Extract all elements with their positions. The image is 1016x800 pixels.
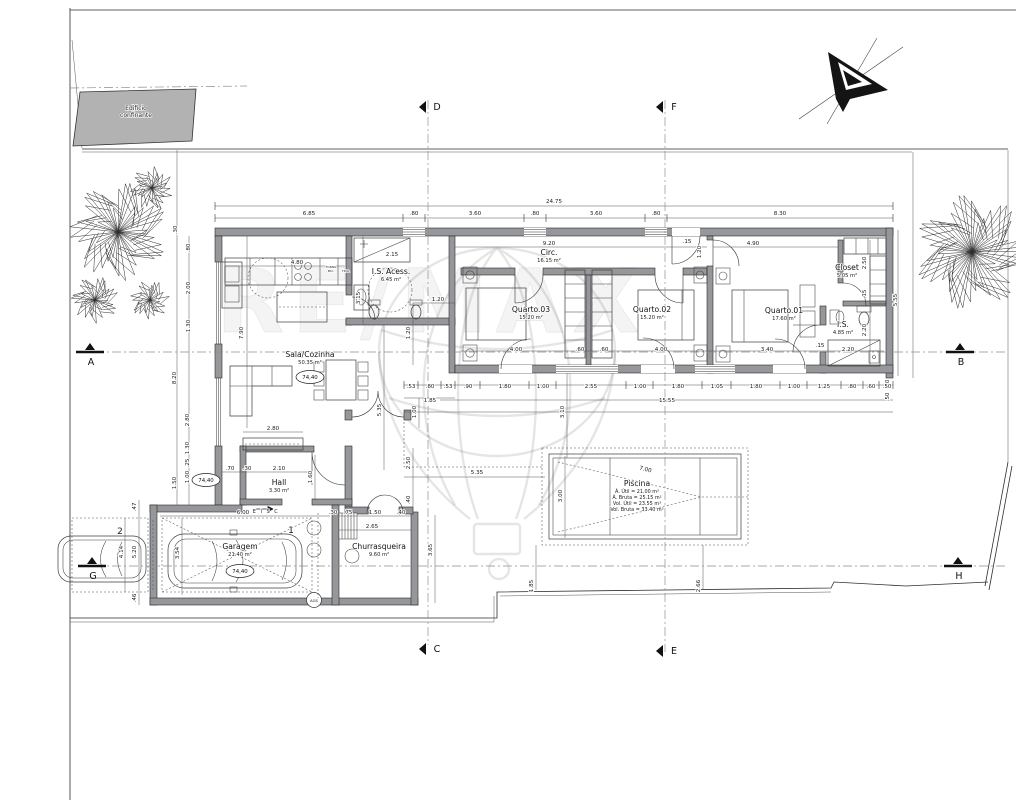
dimension-label: 1.85 [529,579,535,592]
dimension-label: 2.50 [862,256,868,269]
floor-plan-svg: RE/MAX Edificio confinante [0,0,1016,800]
room-area-label: 17.60 m² [772,316,796,322]
section-marker-label: H [955,571,962,582]
toilet [857,306,871,312]
dimension-label: 4.00 [655,347,668,353]
north-arrow-icon [799,38,903,124]
dimension-label: .80 [531,211,540,217]
room-label: Garagem [222,542,257,551]
dimension-label: .15 [816,343,825,349]
room-area-label: 6.45 m² [381,277,401,283]
dimension-label: 2.00 [186,281,192,294]
dimension-label: 3.60 [590,211,603,217]
dimension-label: 1.05 [711,384,724,390]
room-label: Quarto.02 [633,305,671,314]
room-label: Closet [835,263,859,272]
wardrobe [592,270,612,358]
dimension-label: 1.60 [308,470,314,483]
room-area-label: 16.15 m² [537,258,561,264]
dimension-label: .80 [410,211,419,217]
dimension-label: .15 [862,289,868,298]
section-marker-label: D [433,102,440,113]
dimension-label: 2.80 [185,413,191,426]
dimension-label: .60 [576,347,585,353]
dimension-label: .40 [406,495,412,504]
dimension-label: 2.20 [842,347,855,353]
dimension-label: 8.20 [172,371,178,384]
dimension-label: .30 [329,510,338,516]
dimension-label: .90 [464,384,473,390]
pool-data-line: Vol. Útil = 23.55 m³ [613,500,661,507]
room-area-label: 5.05 m² [837,273,857,279]
section-marker-arrow-icon [955,343,965,350]
dimension-label: 2.65 [366,524,379,530]
dimension-label: .70 [226,466,235,472]
dimension-label: 2.55 [585,384,598,390]
dimension-label: .80 [652,211,661,217]
dimension-label: 1.50 [369,510,382,516]
tree-icon [131,282,170,319]
dimension-label: 15.55 [659,398,675,404]
dimension-label: .15 [683,239,692,245]
dimension-label: 1.00 [788,384,801,390]
annotation-label: 1 [288,526,294,536]
dimension-label: 1.00 [412,405,418,418]
dimension-label: 1.00 [634,384,647,390]
level-value: 74,40 [302,375,318,381]
dimension-label: 1.80 [672,384,685,390]
dimension-label: 4.80 [291,260,304,266]
floor-plan-page: RE/MAX Edificio confinante [0,0,1016,800]
dimension-label: .25 [185,458,191,467]
tree-icon [70,183,163,280]
room-label: Churrasqueira [352,542,406,551]
section-marker-label: F [671,102,676,113]
dimension-label: .60 [867,384,876,390]
dimension-label: 2.15 [386,252,399,258]
dimension-label: 1.80 [750,384,763,390]
dimension-label: .50 [885,392,891,401]
room-label: Quarto.03 [512,305,550,314]
room-area-label: 50.35 m² [298,360,322,366]
dimension-label: 2.66 [696,579,702,592]
room-area-label: 3.30 m² [269,488,289,494]
annotation-label: MIC. [328,269,335,273]
section-marker-label: E [671,646,677,657]
dimension-label: 9.20 [543,241,556,247]
dimension-label: 7.90 [239,326,245,339]
section-marker-arrow-icon [85,343,95,350]
dimension-label: 1.20 [697,245,703,258]
dimension-label: 1.20 [406,326,412,339]
room-label: Quarto.01 [765,306,803,315]
room-label: I.S. [837,320,849,329]
level-value: 74,40 [232,569,248,575]
section-marker-arrow-icon [656,101,663,113]
dimension-label: 24.75 [546,199,562,205]
room-area-label: 4.85 m² [833,330,853,336]
dimension-label: 1.00 [185,470,191,483]
room-label: Hall [272,478,287,487]
annotation-label: 2 [117,527,123,537]
dimension-label: .40 [397,510,406,516]
room-area-label: 15.20 m² [519,315,543,321]
room-label: Sala/Cozinha [285,350,334,359]
section-marker-label: G [89,571,96,582]
pool-data-line: Vol. Bruta = 33.40 m³ [610,507,663,513]
annotation-label: E I S C [253,509,280,515]
dimension-label: 1.30 [185,441,191,454]
section-marker-arrow-icon [656,645,663,657]
room-area-label: 9.60 m² [369,552,389,558]
dimension-label: 6.85 [303,211,316,217]
closet-shelves [844,238,886,254]
dimension-label: 1.50 [172,476,178,489]
dimension-label: .30 [243,466,252,472]
dimension-label: .46 [132,593,138,602]
dimension-label: .30 [173,225,179,234]
room-label: Circ. [541,248,558,257]
dimension-label: .75 [344,510,353,516]
dimension-label: .53 [407,384,416,390]
room-area-label: 21.40 m² [228,552,252,558]
dimension-label: .53 [444,384,453,390]
dimension-label: 1.20 [432,297,445,303]
tree-icon [71,278,117,324]
dimension-label: 3.65 [428,543,434,556]
annotation-label: AGS [310,598,318,603]
garage-car-icon [168,530,302,592]
dimension-label: 2.80 [267,426,280,432]
dimension-label: 3.15 [356,291,362,304]
dimension-label: .80 [848,384,857,390]
dimension-label: .50 [883,384,892,390]
adjacent-building-label-2: confinante [120,112,152,119]
adjacent-building: Edificio confinante [70,86,247,146]
dimension-label: 4.14 [119,545,125,558]
dimension-label: 5.35 [471,470,484,476]
sofa [230,366,292,416]
section-marker-label: C [434,644,441,655]
wardrobe [565,270,585,358]
dining-table [326,360,356,400]
section-marker-arrow-icon [953,557,963,564]
dimension-label: .60 [600,347,609,353]
dimension-label: 1.25 [818,384,831,390]
section-marker-label: B [958,357,965,368]
level-value: 74,40 [198,478,214,484]
dimension-label: 3.40 [761,347,774,353]
dimension-label: .47 [132,502,138,511]
pool-data-line: Á. Útil = 21.00 m² [615,488,659,495]
dimension-label: 2.10 [273,466,286,472]
dimension-label: 1.85 [424,398,437,404]
dimension-label: 3.60 [469,211,482,217]
dimension-label: 2.20 [862,323,868,336]
dimension-label: 1.00 [537,384,550,390]
dimension-label: 3.10 [560,405,566,418]
dimension-label: 1.30 [186,319,192,332]
tree-icon [919,196,1016,309]
dimension-label: 5.55 [893,293,899,306]
section-marker-arrow-icon [419,101,426,113]
section-marker-label: A [88,357,95,368]
dimension-label: .80 [426,384,435,390]
dimension-label: 2.50 [406,456,412,469]
dimension-label: 8.30 [774,211,787,217]
site-boundary [70,8,1016,800]
dimension-label: .80 [186,243,192,252]
annotation-label: FRIG. [342,269,350,273]
dimension-label: 3.00 [558,489,564,502]
pool-label: Piscina [624,479,650,488]
dimension-label: 1.80 [499,384,512,390]
dimension-label: 6.00 [237,510,250,516]
dimension-label: 4.90 [747,241,760,247]
bbq-icon [345,549,359,563]
dimension-label: 3.54 [175,546,181,559]
dimension-label: 5.35 [377,403,383,416]
pool-data-line: Á. Bruta = 25.15 m² [612,494,661,501]
dimension-label: 4.00 [510,347,523,353]
bed-quarto03 [466,288,526,340]
room-area-label: 15.20 m² [640,315,664,321]
room-label: I.S. Acess. [372,267,411,276]
section-marker-arrow-icon [419,643,426,655]
dimension-label: 5.20 [132,545,138,558]
adjacent-building-label-1: Edificio [125,105,147,112]
